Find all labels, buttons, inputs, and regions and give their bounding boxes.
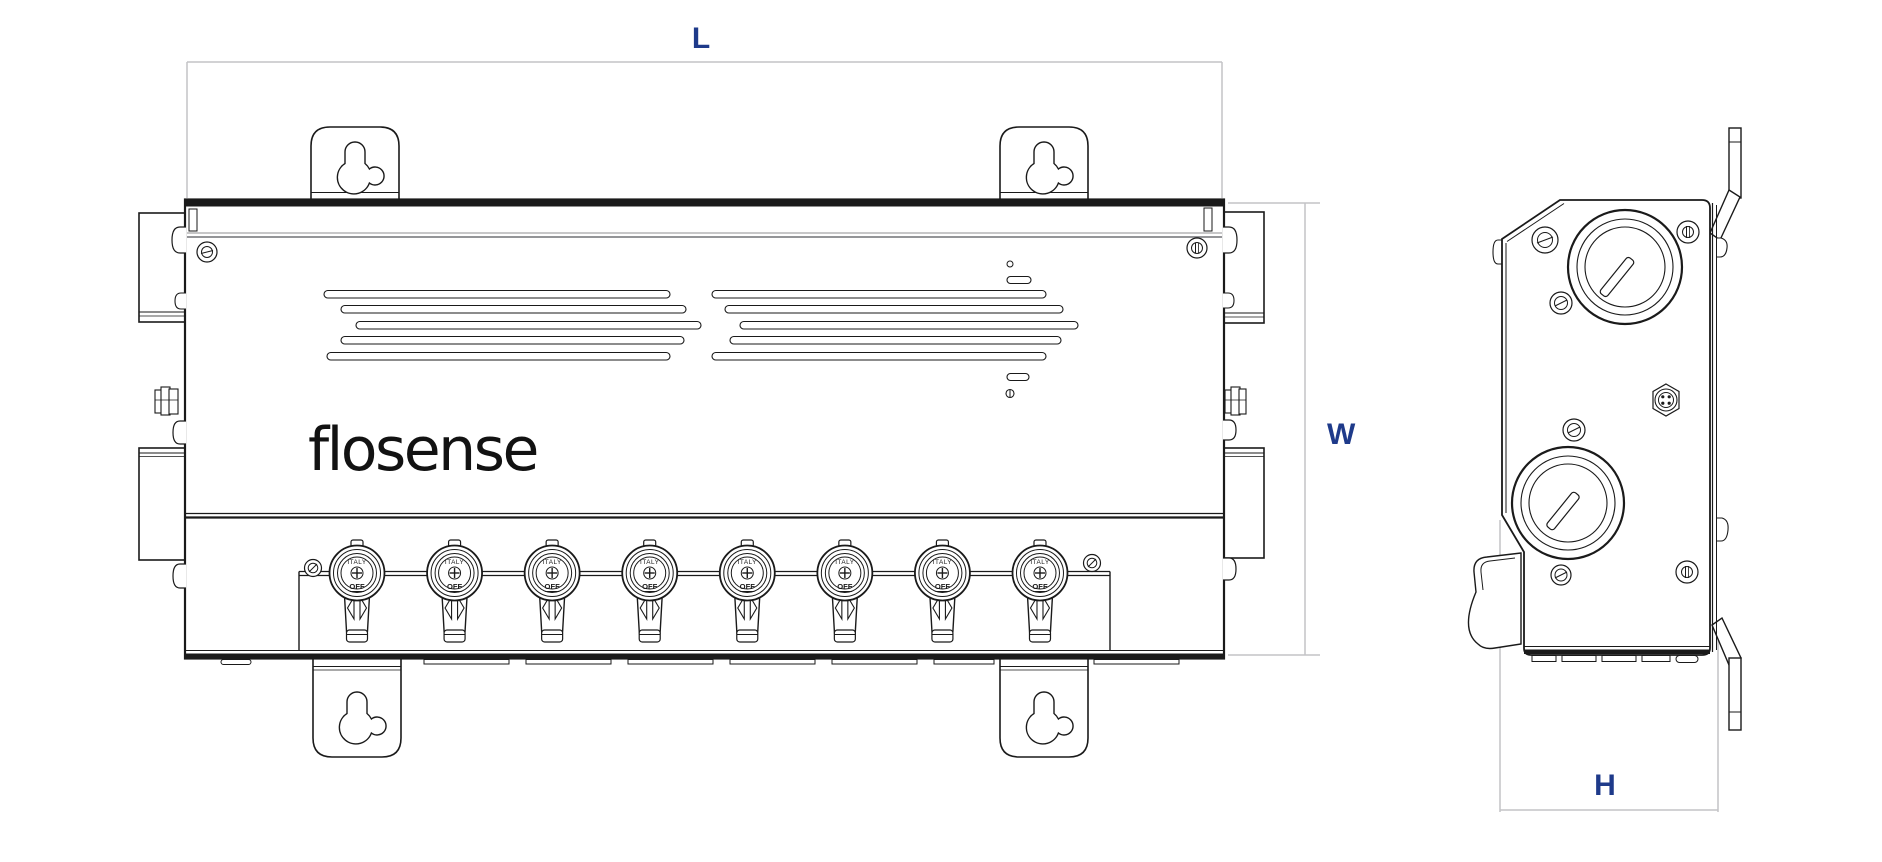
- front-view: flosense: [139, 127, 1264, 757]
- screw-icon: [197, 242, 217, 262]
- valve-state-label: OFF: [349, 582, 365, 591]
- valve-ring-label: ITALY: [835, 559, 855, 566]
- technical-drawing-page: ITALY OFF L W H: [0, 0, 1882, 862]
- side-view: [1468, 128, 1741, 730]
- valve-state-label: OFF: [1032, 582, 1048, 591]
- side-tab-left-bottom: [139, 448, 185, 560]
- m12-connector-icon: [1653, 384, 1679, 416]
- length-label: L: [692, 22, 710, 55]
- valve-state-label: OFF: [545, 582, 561, 591]
- valve-ring-label: ITALY: [1030, 559, 1050, 566]
- valve-state-label: OFF: [447, 582, 463, 591]
- mounting-bracket-bottom-right: [1000, 659, 1088, 757]
- valve-ring-label: ITALY: [445, 559, 465, 566]
- valve-state-label: OFF: [837, 582, 853, 591]
- hose-connector-left: [155, 387, 178, 415]
- screw-icon: [1677, 221, 1699, 243]
- screw-icon: [1532, 227, 1558, 253]
- valve-state-label: OFF: [642, 582, 658, 591]
- screw-icon: [1550, 292, 1572, 314]
- mounting-bracket-top-right: [1000, 127, 1088, 199]
- side-feet: [1532, 656, 1698, 663]
- mounting-bracket-bottom-left: [313, 659, 401, 757]
- screw-icon: [305, 560, 322, 577]
- mounting-bracket-top-left: [311, 127, 399, 199]
- edge-plug-icon: [1717, 518, 1728, 541]
- side-tab-right-bottom: [1224, 448, 1264, 558]
- technical-drawing: ITALY OFF L W H: [0, 0, 1882, 862]
- port-top: [1568, 210, 1682, 324]
- valve-ring-label: ITALY: [738, 559, 758, 566]
- screw-icon: [1084, 555, 1101, 572]
- width-label: W: [1327, 418, 1356, 451]
- valve-ring-label: ITALY: [640, 559, 660, 566]
- screw-icon: [1676, 561, 1698, 583]
- edge-plug-icon: [1717, 238, 1727, 257]
- side-bracket-arm-top: [1710, 128, 1741, 240]
- valve-handle-side: [1468, 553, 1521, 649]
- valve-state-label: OFF: [740, 582, 756, 591]
- hose-connector-right: [1225, 387, 1246, 415]
- screw-icon: [1187, 238, 1207, 258]
- brand-logo: flosense: [308, 415, 537, 485]
- valve-ring-label: ITALY: [347, 559, 367, 566]
- screw-icon: [1563, 419, 1585, 441]
- edge-plug-icon: [1493, 240, 1502, 264]
- valve-ring-label: ITALY: [542, 559, 562, 566]
- height-label: H: [1594, 769, 1616, 802]
- screw-icon: [1551, 565, 1571, 585]
- valve-state-label: OFF: [935, 582, 951, 591]
- valve-ring-label: ITALY: [933, 559, 953, 566]
- port-bottom: [1512, 447, 1624, 559]
